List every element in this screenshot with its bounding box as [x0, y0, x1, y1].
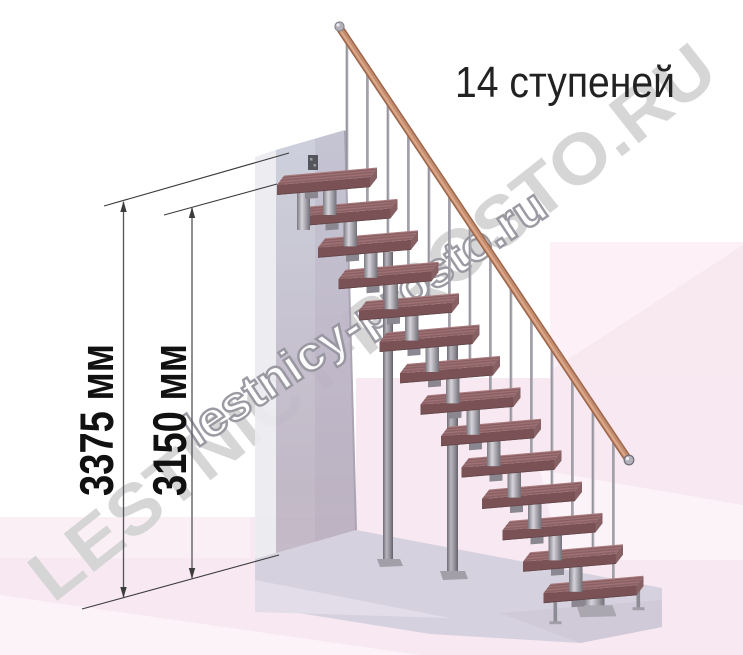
svg-text:14 ступеней: 14 ступеней [455, 58, 675, 107]
svg-text:3150 мм: 3150 мм [143, 344, 196, 496]
svg-text:3375 мм: 3375 мм [70, 344, 123, 496]
